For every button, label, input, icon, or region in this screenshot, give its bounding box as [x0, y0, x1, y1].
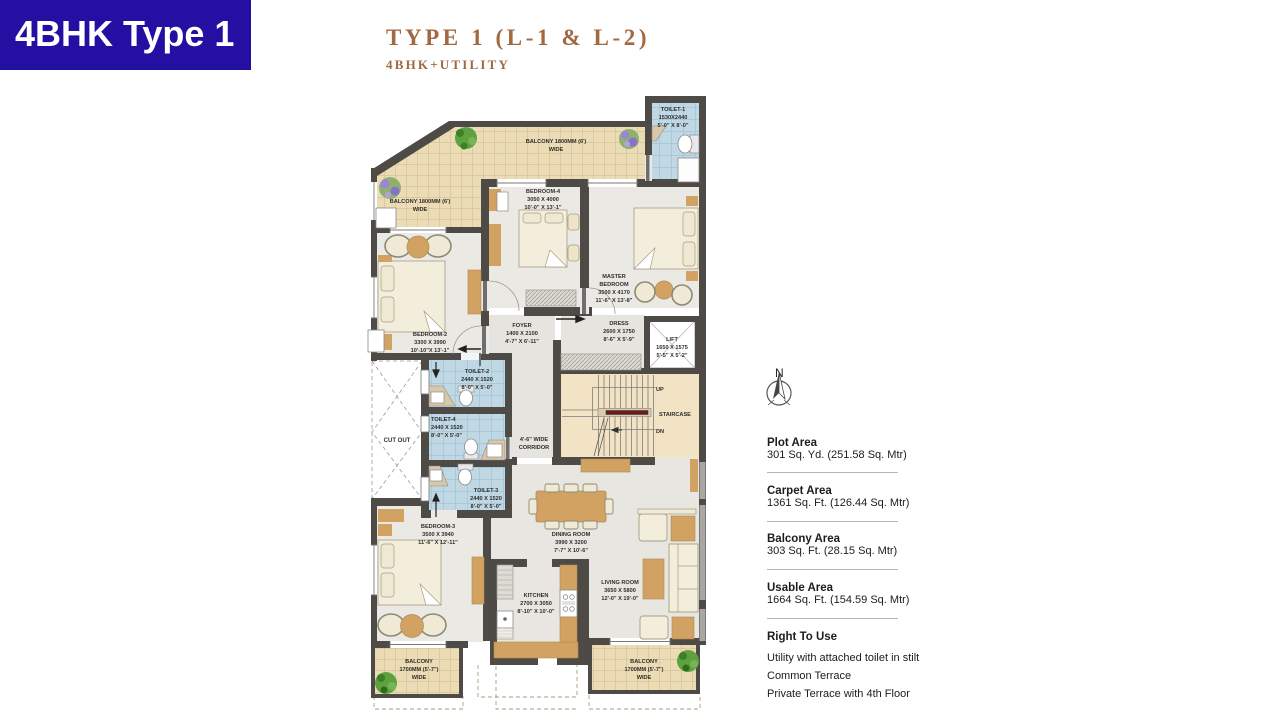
svg-text:4'-6" WIDE: 4'-6" WIDE: [520, 437, 548, 443]
svg-text:8'-0" X 5'-0": 8'-0" X 5'-0": [462, 385, 493, 391]
svg-text:2440 X 1520: 2440 X 1520: [431, 425, 463, 431]
svg-text:KITCHEN: KITCHEN: [524, 593, 549, 599]
svg-text:LIFT: LIFT: [666, 337, 678, 343]
svg-text:8'-10" X 10'-0": 8'-10" X 10'-0": [517, 609, 555, 615]
svg-text:UP: UP: [656, 387, 664, 393]
svg-text:DN: DN: [656, 429, 664, 435]
svg-text:TOILET-3: TOILET-3: [474, 488, 498, 494]
svg-text:3300 X 3990: 3300 X 3990: [414, 340, 446, 346]
svg-text:1650 X 1575: 1650 X 1575: [656, 345, 688, 351]
svg-text:TOILET-2: TOILET-2: [465, 369, 489, 375]
svg-text:5'-5" X 5'-2": 5'-5" X 5'-2": [657, 353, 688, 359]
svg-text:DRESS: DRESS: [609, 321, 629, 327]
svg-text:7'-7" X 10'-6": 7'-7" X 10'-6": [554, 548, 588, 554]
svg-text:BALCONY: BALCONY: [405, 659, 433, 665]
svg-text:8'-6" X 5'-9": 8'-6" X 5'-9": [604, 337, 635, 343]
svg-text:BEDROOM-2: BEDROOM-2: [413, 332, 447, 338]
svg-text:BALCONY: BALCONY: [630, 659, 658, 665]
svg-text:TOILET-1: TOILET-1: [661, 107, 685, 113]
svg-text:FOYER: FOYER: [512, 323, 531, 329]
svg-text:10'-10"X 13'-1": 10'-10"X 13'-1": [411, 348, 450, 354]
svg-text:12'-0" X 19'-0": 12'-0" X 19'-0": [601, 596, 639, 602]
svg-text:BEDROOM-4: BEDROOM-4: [526, 189, 561, 195]
svg-text:1400 X 2100: 1400 X 2100: [506, 331, 538, 337]
svg-text:WIDE: WIDE: [549, 147, 564, 153]
svg-text:8'-0" X 5'-0": 8'-0" X 5'-0": [431, 433, 462, 439]
svg-text:CORRIDOR: CORRIDOR: [519, 445, 549, 451]
svg-text:BEDROOM: BEDROOM: [599, 282, 629, 288]
svg-text:8'-0" X 5'-0": 8'-0" X 5'-0": [471, 504, 502, 510]
svg-text:4'-7" X 6'-11": 4'-7" X 6'-11": [505, 339, 539, 345]
svg-text:3050 X 4000: 3050 X 4000: [527, 197, 559, 203]
svg-text:CUT OUT: CUT OUT: [384, 438, 411, 444]
svg-text:10'-0" X 13'-1": 10'-0" X 13'-1": [524, 205, 562, 211]
svg-text:WIDE: WIDE: [413, 207, 428, 213]
svg-text:WIDE: WIDE: [637, 675, 652, 681]
svg-text:WIDE: WIDE: [412, 675, 427, 681]
svg-text:BEDROOM-3: BEDROOM-3: [421, 524, 455, 530]
svg-text:BALCONY 1800MM (6'): BALCONY 1800MM (6'): [526, 139, 587, 145]
svg-text:STAIRCASE: STAIRCASE: [659, 412, 691, 418]
svg-text:1530X2440: 1530X2440: [659, 115, 688, 121]
svg-text:11'-6" X 12'-11": 11'-6" X 12'-11": [418, 540, 458, 546]
svg-text:3650 X 5800: 3650 X 5800: [604, 588, 636, 594]
svg-text:11'-6" X 13'-8": 11'-6" X 13'-8": [596, 298, 633, 304]
svg-text:DINING ROOM: DINING ROOM: [552, 532, 591, 538]
svg-text:2440 X 1520: 2440 X 1520: [461, 377, 493, 383]
svg-text:2440 X 1520: 2440 X 1520: [470, 496, 502, 502]
svg-text:3500 X 4170: 3500 X 4170: [598, 290, 630, 296]
svg-text:TOILET-4: TOILET-4: [431, 417, 456, 423]
svg-text:2700 X 3050: 2700 X 3050: [520, 601, 552, 607]
svg-text:LIVING ROOM: LIVING ROOM: [601, 580, 639, 586]
svg-text:MASTER: MASTER: [602, 274, 626, 280]
svg-text:5'-0" X 8'-0": 5'-0" X 8'-0": [658, 123, 689, 129]
svg-text:2600 X 1750: 2600 X 1750: [603, 329, 635, 335]
svg-text:3990 X 3200: 3990 X 3200: [555, 540, 587, 546]
svg-text:BALCONY 1800MM (6'): BALCONY 1800MM (6'): [390, 199, 451, 205]
svg-text:3500 X 3940: 3500 X 3940: [422, 532, 454, 538]
svg-text:1700MM (5'-7"): 1700MM (5'-7"): [399, 667, 438, 673]
svg-text:1700MM (5'-7"): 1700MM (5'-7"): [624, 667, 663, 673]
